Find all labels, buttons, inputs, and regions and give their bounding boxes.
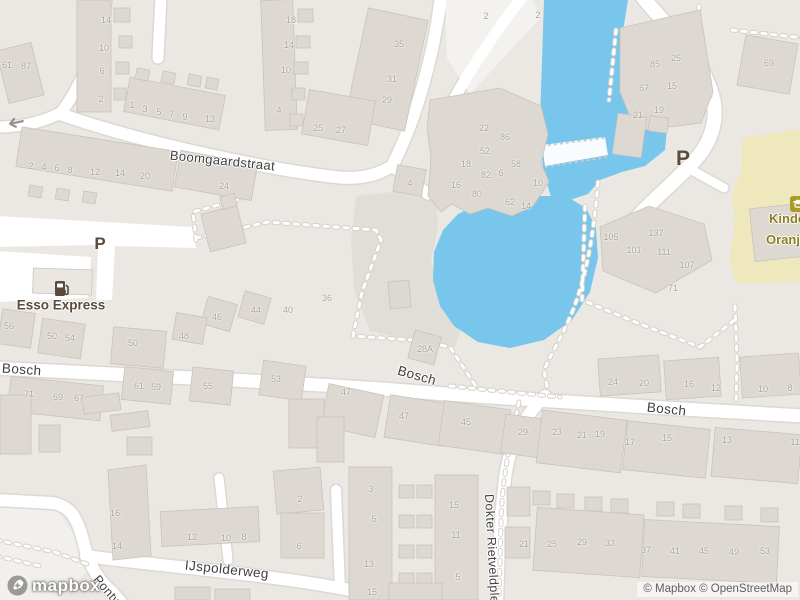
basemap-svg xyxy=(0,0,800,600)
water-pond xyxy=(433,196,598,348)
mapbox-logo-text: mapbox xyxy=(32,576,100,596)
mapbox-logo-icon xyxy=(7,575,28,596)
school-icon xyxy=(790,196,800,212)
buildings-layer xyxy=(0,0,800,600)
map-canvas[interactable]: 6187141062135791324681214202418141043531… xyxy=(0,0,800,600)
fuel-station-icon xyxy=(54,280,70,297)
mapbox-logo[interactable]: mapbox xyxy=(7,575,100,596)
map-attribution[interactable]: © Mapbox © OpenStreetMap xyxy=(637,582,798,597)
